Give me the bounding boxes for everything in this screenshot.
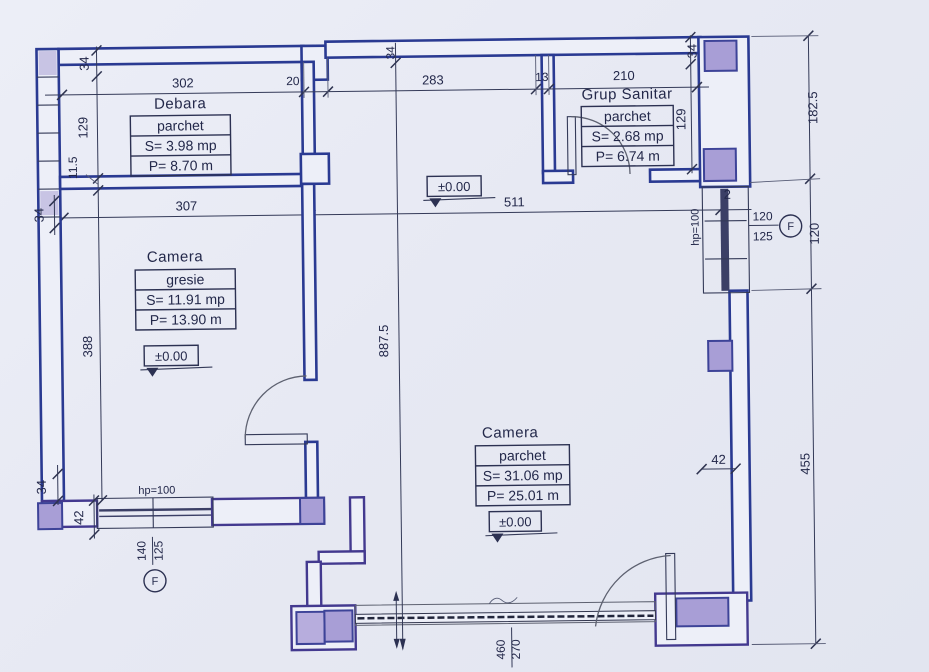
dim-388: 388 (80, 336, 95, 358)
room-name: Camera (147, 248, 204, 266)
room-perimeter: P= 25.01 m (487, 487, 559, 504)
room-perimeter: P= 13.90 m (150, 311, 222, 328)
column (676, 598, 728, 627)
window-left (97, 497, 213, 528)
window-right (702, 187, 749, 294)
window-hp-label: hp=100 (138, 485, 175, 497)
dim-302: 302 (172, 75, 194, 90)
door-swing-arc (244, 376, 307, 439)
room-name: Debara (154, 95, 207, 113)
pillar-partition (301, 154, 329, 184)
column (38, 503, 62, 529)
wall-partition-lower (305, 442, 318, 502)
dimension-lines (46, 204, 751, 223)
room-perimeter: P= 6.74 m (596, 148, 660, 165)
dim-20: 20 (286, 74, 300, 88)
dim-887-5: 887.5 (376, 325, 391, 358)
door-gresie (244, 376, 307, 445)
dim-129-left: 129 (75, 117, 90, 139)
dim-34-top: 34 (383, 46, 397, 60)
dim-511: 511 (504, 194, 525, 209)
dim-283: 283 (422, 72, 444, 87)
dim-270: 270 (509, 639, 523, 660)
room-name: Grup Sanitar (581, 85, 672, 103)
dim-120: 120 (807, 223, 822, 245)
dim-42-right: 42 (711, 452, 726, 467)
room-camera-parchet: Camera parchet S= 31.06 mp P= 25.01 m ±0… (475, 424, 570, 543)
level-marker: ±0.00 (499, 514, 532, 529)
room-camera-gresie: Camera gresie S= 11.91 mp P= 13.90 m ±0.… (135, 248, 237, 377)
level-marker: ±0.00 (155, 348, 188, 363)
room-finish: parchet (157, 117, 204, 134)
dim-307: 307 (175, 198, 197, 213)
wall-top-right (325, 37, 700, 58)
room-area: S= 2.68 mp (591, 128, 663, 145)
window-type: F (787, 221, 794, 233)
room-grup-sanitar: Grup Sanitar parchet S= 2.68 mp P= 6.74 … (581, 85, 674, 166)
wall-step-c (307, 562, 322, 608)
dim-34-left-2: 34 (31, 208, 46, 223)
dim-34-left-3: 34 (34, 480, 49, 495)
room-finish: gresie (166, 271, 205, 287)
dim-11-5: 11.5 (66, 156, 80, 179)
window-right-labels: hp=100 120 125 F (689, 207, 801, 245)
room-perimeter: P= 8.70 m (149, 157, 213, 174)
column (704, 149, 736, 181)
level-marker: ±0.00 (438, 179, 471, 194)
terrace-railing (355, 602, 655, 626)
column (296, 612, 324, 644)
window-height: 125 (753, 229, 774, 243)
scanned-floor-plan: 302 20 283 13 210 34 307 511 34 129 11.5… (0, 0, 929, 672)
handwritten-mark (489, 597, 517, 603)
window-left-labels: hp=100 140 125 F (134, 485, 177, 592)
floor-plan-svg: 302 20 283 13 210 34 307 511 34 129 11.5… (0, 0, 929, 672)
dim-210: 210 (613, 68, 635, 83)
wall-gs-bottom-a (543, 171, 573, 183)
dim-42-left: 42 (71, 510, 86, 525)
room-finish: parchet (604, 108, 651, 125)
room-area: S= 11.91 mp (146, 291, 225, 308)
wall-gs-bottom-b (650, 169, 702, 182)
dim-182-5: 182.5 (805, 91, 820, 124)
room-name: Camera (482, 424, 539, 442)
room-area: S= 31.06 mp (483, 467, 563, 484)
window-width: 140 (134, 541, 148, 562)
column (300, 498, 324, 524)
wall-debara-bottom (60, 174, 304, 189)
room-area: S= 3.98 mp (145, 137, 217, 154)
wall-right-lower (729, 291, 751, 601)
main-level-marker: ±0.00 (423, 176, 495, 208)
wall-left (36, 49, 64, 501)
window-type: F (152, 576, 159, 588)
window-height: 125 (151, 540, 165, 561)
dim-2: 2 (724, 187, 731, 202)
room-debara: Debara parchet S= 3.98 mp P= 8.70 m (130, 95, 231, 176)
window-width: 120 (752, 209, 773, 223)
dim-13: 13 (535, 70, 549, 84)
dim-455: 455 (797, 453, 812, 475)
column (708, 341, 732, 371)
dim-460: 460 (494, 639, 508, 660)
dim-129-right: 129 (673, 108, 688, 130)
wall-step-b (319, 551, 365, 564)
dim-34-left: 34 (77, 56, 92, 71)
wall-partition-upper (302, 184, 316, 380)
window-hp-label: hp=100 (689, 209, 701, 246)
column (324, 610, 352, 641)
dim-34-right: 34 (684, 44, 699, 59)
room-finish: parchet (499, 447, 546, 464)
column (704, 41, 736, 71)
wall-top-left (58, 46, 303, 65)
masonry-shade (38, 51, 56, 75)
